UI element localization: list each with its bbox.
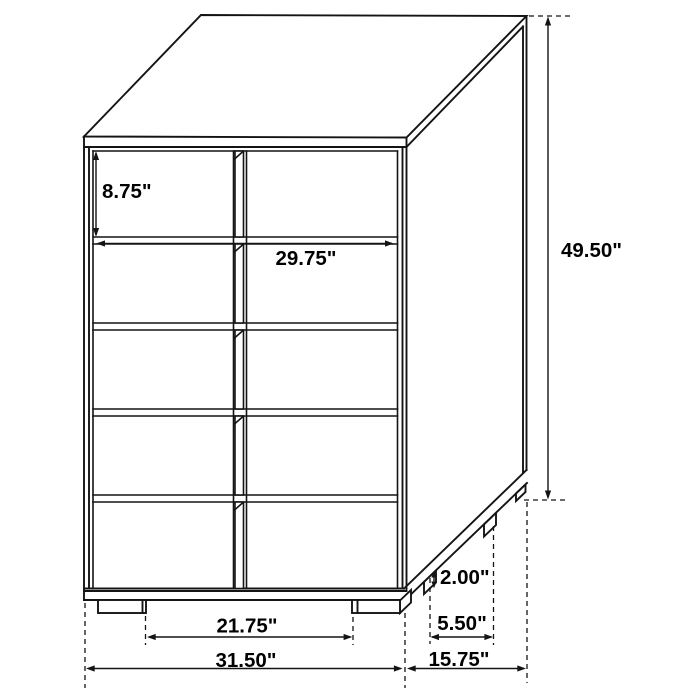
label-overall-depth: 15.75" <box>428 648 489 671</box>
carcass-outline <box>84 15 527 600</box>
arrow-front-leg-spacing-right <box>344 634 353 640</box>
arrow-overall-width-left <box>86 665 95 671</box>
arrow-overall-height-top <box>545 17 551 26</box>
arrow-drawer-width-left <box>96 240 105 246</box>
label-overall-width: 31.50" <box>215 649 276 672</box>
arrow-overall-depth-right <box>517 665 526 671</box>
arrow-overall-height-bottom <box>545 491 551 500</box>
side-leg-back <box>516 485 526 502</box>
label-drawer-width: 29.75" <box>275 247 336 270</box>
label-front-leg-spacing: 21.75" <box>216 615 277 638</box>
front-right-leg <box>352 600 400 613</box>
drawer-fronts <box>93 151 398 589</box>
handle-strips <box>235 151 244 589</box>
label-overall-height: 49.50" <box>561 239 622 262</box>
arrow-drawer-height-top <box>93 151 99 160</box>
chest-dimension-drawing: 8.75" 29.75" 49.50" 2.00" 5.50" 21.75" 3… <box>0 0 700 700</box>
arrow-front-leg-spacing-left <box>147 634 156 640</box>
front-right-leg-side <box>400 590 411 613</box>
handle-strip-1 <box>235 151 244 237</box>
front-left-leg <box>98 600 146 613</box>
label-leg-height: 2.00" <box>440 566 490 589</box>
arrow-overall-depth-left <box>407 665 416 671</box>
label-drawer-height: 8.75" <box>102 180 152 203</box>
dimension-labels: 8.75" 29.75" 49.50" 2.00" 5.50" 21.75" 3… <box>102 180 622 672</box>
handle-strip-3 <box>235 330 244 409</box>
legs <box>98 485 526 614</box>
top-face <box>84 15 527 138</box>
arrow-drawer-width-right <box>385 240 394 246</box>
label-side-leg-spacing: 5.50" <box>437 612 487 635</box>
handle-strip-4 <box>235 416 244 495</box>
arrow-overall-width-right <box>394 665 403 671</box>
handle-strip-5 <box>235 502 244 589</box>
diagram-canvas: 8.75" 29.75" 49.50" 2.00" 5.50" 21.75" 3… <box>0 0 700 700</box>
arrow-drawer-height-bottom <box>93 228 99 237</box>
side-leg-middle <box>484 513 496 537</box>
handle-strip-2 <box>235 244 244 323</box>
